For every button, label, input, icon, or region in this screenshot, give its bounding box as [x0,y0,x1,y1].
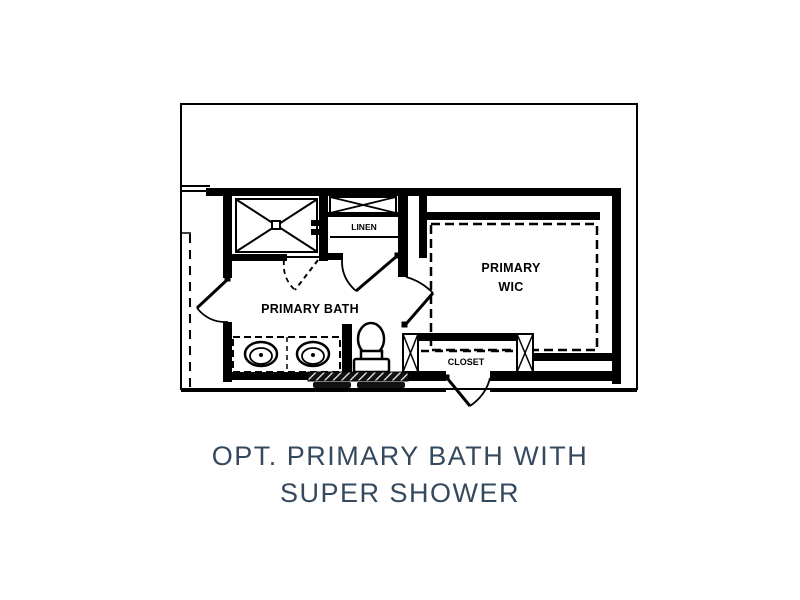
door-swing-icon [197,308,228,322]
window-panel-icon [357,382,405,388]
door-leaf [447,378,470,406]
door-leaf [197,279,228,308]
shower-icon [236,199,320,252]
linen-front-line [330,236,398,238]
caption-line2: SUPER SHOWER [0,475,800,512]
shower-threshold [287,256,319,258]
caption: OPT. PRIMARY BATH WITH SUPER SHOWER [0,438,800,512]
wall-bath-left-lower [223,322,232,382]
linen-shelf-x-icon [330,197,396,213]
bath-entry-door [197,276,230,322]
toilet-icon [354,323,389,372]
wic-door [402,277,433,327]
door-hinge [444,375,449,380]
linen-label: LINEN [351,222,377,232]
wall-bottom-right [490,371,621,381]
caption-line1: OPT. PRIMARY BATH WITH [0,438,800,475]
closet-label: CLOSET [448,357,485,367]
wall-post-vanity-toilet [342,324,352,372]
primary-bath-label: PRIMARY BATH [261,302,359,316]
closet-door [444,375,490,406]
door-hinge [402,322,407,327]
wall-top [206,188,621,196]
floor-plan-page: PRIMARY BATH PRIMARY WIC LINEN CLOSET OP… [0,0,800,600]
door-hinge [395,253,400,258]
shower-glass-door-icon [284,260,318,290]
door-swing-icon [406,277,433,293]
door-leaf [406,293,433,324]
window-panel-icon [313,382,351,388]
primary-wic-label-line1: PRIMARY [481,261,540,275]
wall-linen-bottom-stub [319,253,343,260]
wall-wic-top [423,212,600,220]
door-hinge [225,276,230,281]
door-swing-icon [342,259,356,291]
wall-wic-left [419,196,427,258]
wall-vanity-bottom [231,372,308,380]
hatched-wall-icon [308,372,408,381]
double-vanity-sinks-icon [233,337,340,372]
wall-right [612,188,621,384]
primary-wic-label-line2: WIC [498,280,523,294]
wall-bottom-right-run [490,388,637,392]
wall-bath-left-upper [223,188,232,278]
door-swing-icon [470,378,490,406]
wall-wic-bottom [533,353,612,361]
linen-hall-door [342,253,400,291]
door-leaf [356,256,397,291]
wall-closet-top [418,333,518,341]
wall-stub-top-left [181,185,210,187]
wall-bottom-left-run [181,388,446,392]
wall-stub-top-left [181,190,210,192]
shower-door-mount [311,220,320,226]
wall-linen-right [398,188,408,277]
wall-shower-right [319,188,328,261]
shower-door-mount [311,229,320,235]
wall-shower-bottom [230,254,287,261]
